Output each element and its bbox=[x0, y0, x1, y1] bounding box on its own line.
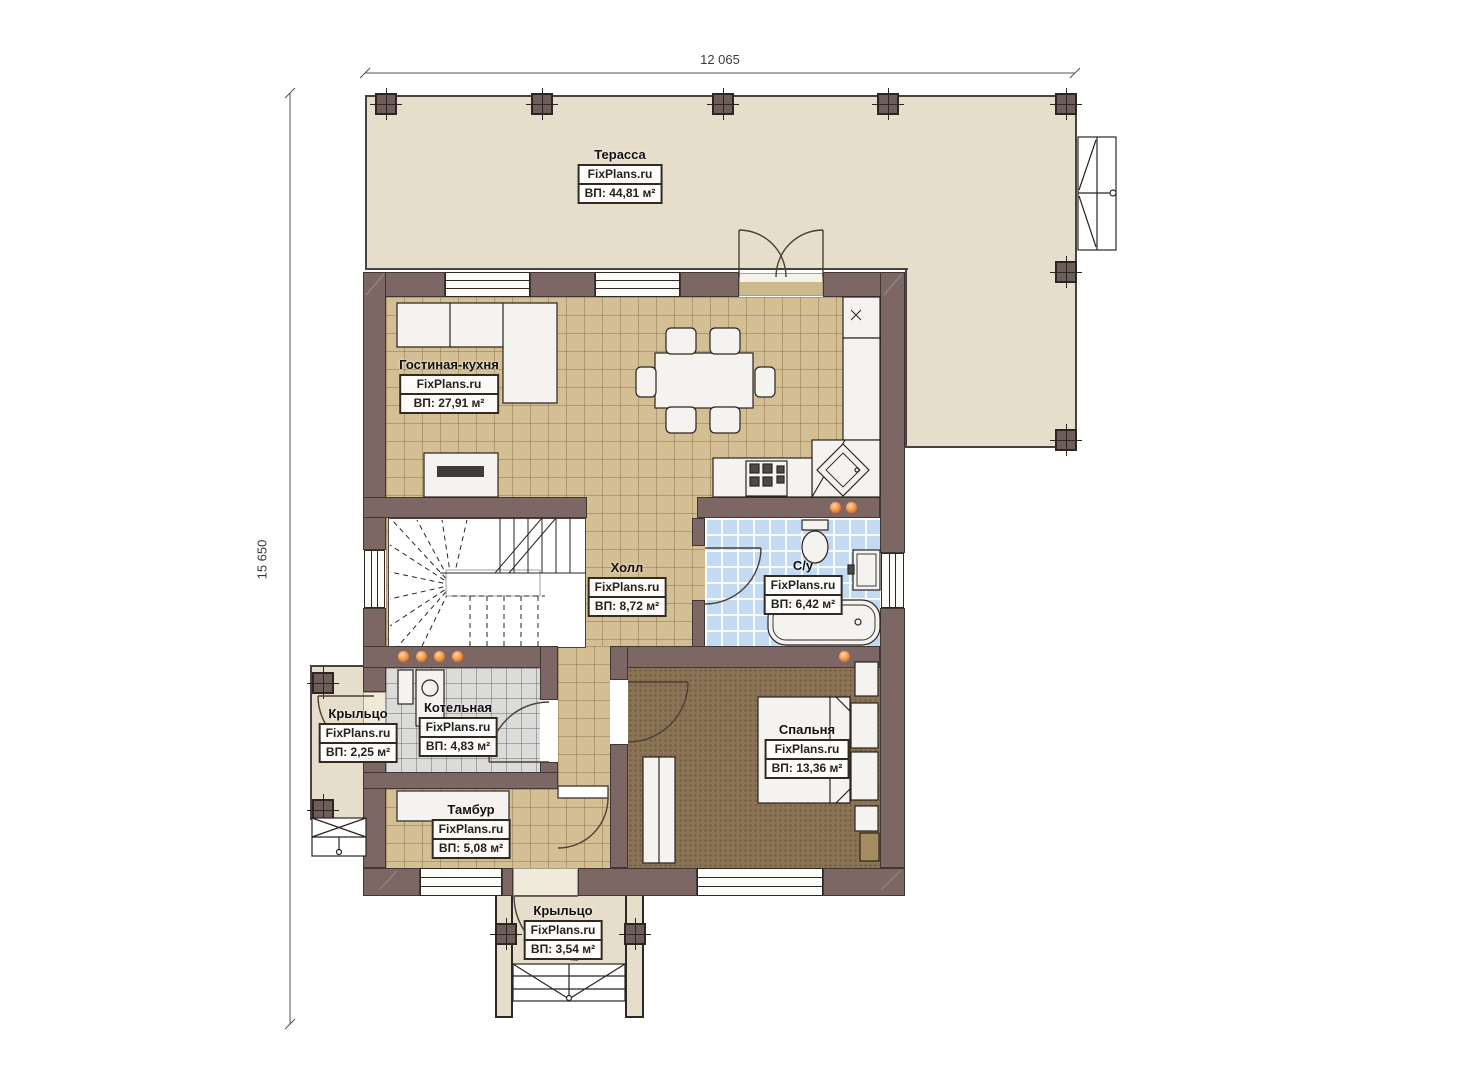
dimension-height-value: 15 650 bbox=[255, 540, 270, 580]
light-point bbox=[452, 651, 463, 662]
column bbox=[1055, 261, 1077, 283]
wall-segment bbox=[363, 868, 420, 896]
column bbox=[312, 672, 334, 694]
room-area: ВП: 4,83 м² bbox=[419, 736, 498, 757]
light-point bbox=[398, 651, 409, 662]
column bbox=[375, 93, 397, 115]
room-area: ВП: 3,54 м² bbox=[524, 939, 603, 960]
room-title: Крыльцо bbox=[524, 903, 603, 918]
brand-badge: FixPlans.ru bbox=[578, 164, 663, 185]
wall-segment bbox=[578, 868, 697, 896]
room-area: ВП: 44,81 м² bbox=[578, 183, 663, 204]
column bbox=[624, 923, 646, 945]
terrace-floor bbox=[365, 95, 1077, 270]
column bbox=[877, 93, 899, 115]
room-area: ВП: 13,36 м² bbox=[765, 758, 850, 779]
brand-badge: FixPlans.ru bbox=[588, 577, 667, 598]
room-title: Тамбур bbox=[432, 802, 511, 817]
brand-badge: FixPlans.ru bbox=[432, 819, 511, 840]
light-point bbox=[846, 502, 857, 513]
room-area: ВП: 6,42 м² bbox=[764, 594, 843, 615]
room-label-boiler: Котельная FixPlans.ru ВП: 4,83 м² bbox=[419, 700, 498, 757]
dimension-width-value: 12 065 bbox=[700, 52, 740, 67]
window bbox=[364, 550, 385, 608]
window bbox=[697, 868, 823, 896]
wall-segment bbox=[363, 772, 558, 789]
room-title: Спальня bbox=[765, 722, 850, 737]
room-label-porch-bottom: Крыльцо FixPlans.ru ВП: 3,54 м² bbox=[524, 903, 603, 960]
window bbox=[595, 272, 680, 297]
room-area: ВП: 2,25 м² bbox=[319, 742, 398, 763]
window bbox=[881, 553, 904, 608]
brand-badge: FixPlans.ru bbox=[765, 739, 850, 760]
room-label-bedroom: Спальня FixPlans.ru ВП: 13,36 м² bbox=[765, 722, 850, 779]
wall-segment bbox=[692, 600, 705, 650]
light-point bbox=[434, 651, 445, 662]
brand-badge: FixPlans.ru bbox=[399, 374, 499, 395]
porch-bottom-wall-left bbox=[495, 892, 513, 1018]
brand-badge: FixPlans.ru bbox=[524, 920, 603, 941]
terrace-door-opening bbox=[739, 273, 823, 296]
brand-badge: FixPlans.ru bbox=[319, 723, 398, 744]
wall-segment bbox=[823, 868, 905, 896]
wall-segment bbox=[363, 497, 587, 518]
room-area: ВП: 8,72 м² bbox=[588, 596, 667, 617]
wall-segment bbox=[880, 608, 905, 868]
column bbox=[531, 93, 553, 115]
light-point bbox=[416, 651, 427, 662]
wall-segment bbox=[530, 272, 595, 297]
brand-badge: FixPlans.ru bbox=[419, 717, 498, 738]
column bbox=[1055, 429, 1077, 451]
room-label-bathroom: С/у FixPlans.ru ВП: 6,42 м² bbox=[764, 558, 843, 615]
floor-plan-canvas: 12 065 15 650 Терасса FixPlans.ru ВП: 44… bbox=[0, 0, 1473, 1080]
room-label-hall: Холл FixPlans.ru ВП: 8,72 м² bbox=[588, 560, 667, 617]
terrace-floor-right bbox=[905, 268, 1077, 448]
terrace-steps-icon bbox=[1078, 137, 1116, 250]
column bbox=[495, 923, 517, 945]
porch-bottom-steps-icon bbox=[513, 964, 625, 1001]
corridor-floor bbox=[558, 646, 610, 789]
wall-segment bbox=[502, 868, 513, 896]
staircase-area bbox=[388, 518, 586, 648]
window bbox=[420, 868, 502, 896]
light-point bbox=[830, 502, 841, 513]
room-label-porch-left: Крыльцо FixPlans.ru ВП: 2,25 м² bbox=[319, 706, 398, 763]
room-title: Терасса bbox=[578, 147, 663, 162]
window bbox=[445, 272, 530, 297]
room-area: ВП: 5,08 м² bbox=[432, 838, 511, 859]
brand-badge: FixPlans.ru bbox=[764, 575, 843, 596]
room-title: Крыльцо bbox=[319, 706, 398, 721]
column bbox=[712, 93, 734, 115]
room-title: Котельная bbox=[419, 700, 498, 715]
room-label-terrace: Терасса FixPlans.ru ВП: 44,81 м² bbox=[578, 147, 663, 204]
column bbox=[312, 799, 334, 821]
wall-segment bbox=[610, 744, 628, 868]
dimension-height-label: 15 650 bbox=[255, 520, 270, 600]
porch-bottom-door-opening bbox=[513, 868, 578, 896]
room-area: ВП: 27,91 м² bbox=[399, 393, 499, 414]
porch-bottom-wall-right bbox=[625, 892, 644, 1018]
wall-segment bbox=[880, 272, 905, 553]
porch-left-steps-icon bbox=[312, 818, 366, 856]
room-label-tambour: Тамбур FixPlans.ru ВП: 5,08 м² bbox=[432, 802, 511, 859]
room-title: Гостиная-кухня bbox=[399, 357, 499, 372]
dimension-width-label: 12 065 bbox=[660, 52, 780, 67]
room-title: С/у bbox=[764, 558, 843, 573]
room-label-living: Гостиная-кухня FixPlans.ru ВП: 27,91 м² bbox=[399, 357, 499, 414]
column bbox=[1055, 93, 1077, 115]
wall-segment bbox=[680, 272, 739, 297]
light-point bbox=[839, 651, 850, 662]
wall-segment bbox=[540, 646, 558, 700]
wall-segment bbox=[692, 518, 705, 546]
room-title: Холл bbox=[588, 560, 667, 575]
wall-segment bbox=[610, 646, 628, 680]
